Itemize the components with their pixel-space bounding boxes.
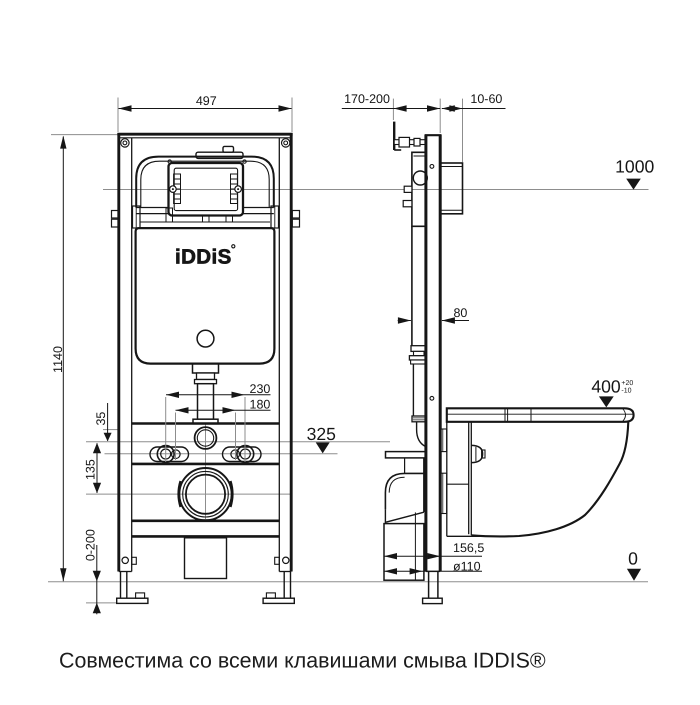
svg-text:156,5: 156,5 — [453, 541, 484, 555]
svg-text:80: 80 — [453, 306, 467, 320]
svg-text:135: 135 — [83, 459, 97, 480]
svg-text:35: 35 — [94, 412, 108, 426]
svg-text:180: 180 — [250, 398, 271, 412]
svg-text:0-200: 0-200 — [84, 529, 98, 561]
svg-text:325: 325 — [307, 424, 337, 444]
svg-text:-10: -10 — [621, 387, 631, 394]
svg-text:400: 400 — [591, 377, 621, 397]
svg-text:ø110: ø110 — [453, 559, 481, 573]
svg-text:170-200: 170-200 — [344, 92, 390, 106]
svg-text:iDDiS: iDDiS — [175, 245, 232, 268]
svg-text:1140: 1140 — [51, 346, 65, 373]
svg-text:+20: +20 — [621, 380, 633, 387]
svg-text:0: 0 — [628, 549, 638, 569]
svg-text:10-60: 10-60 — [470, 92, 502, 106]
svg-text:Совместима со всеми клавишами: Совместима со всеми клавишами смыва IDDI… — [59, 648, 546, 672]
svg-text:1000: 1000 — [615, 157, 654, 177]
svg-text:497: 497 — [196, 94, 217, 108]
svg-text:230: 230 — [250, 382, 271, 396]
